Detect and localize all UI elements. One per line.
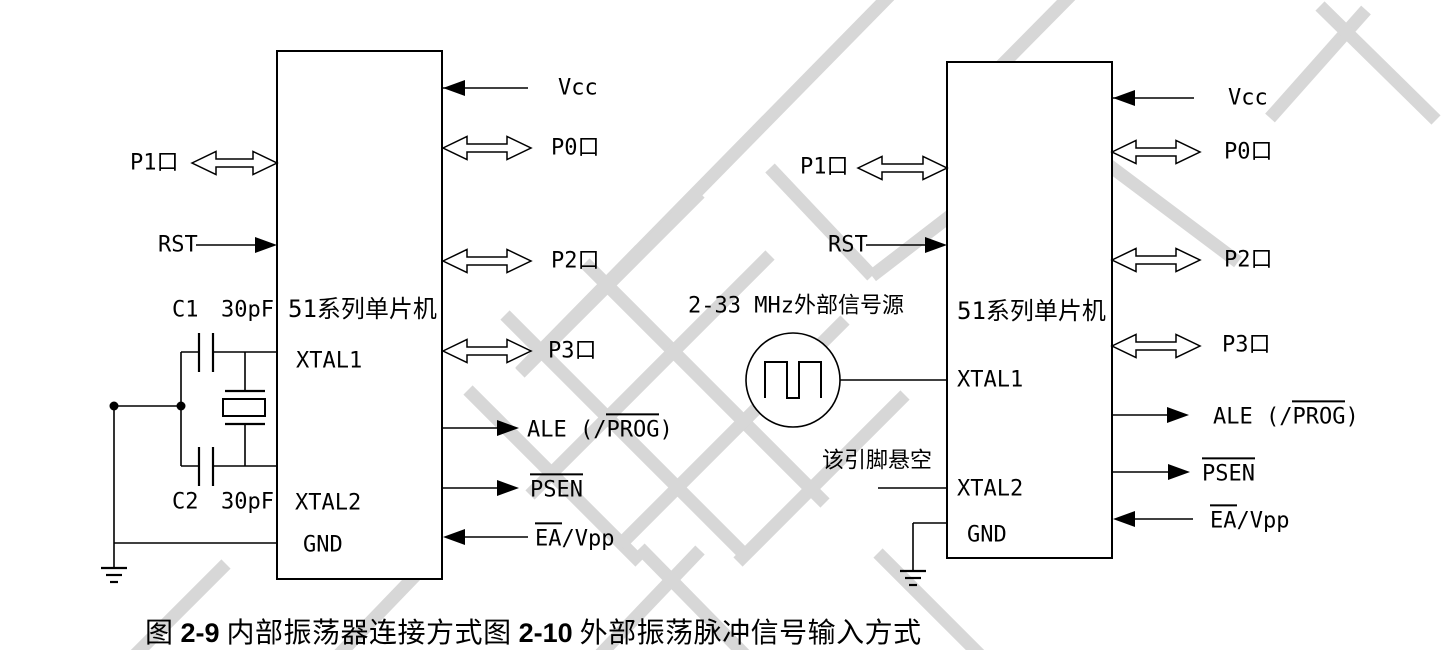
c2-value: 30pF: [221, 489, 274, 514]
left-chip-label: 51系列单片机: [288, 296, 437, 324]
floating-pin-label: 该引脚悬空: [822, 448, 932, 473]
caption-fig2-title: 外部振荡脉冲信号输入方式: [580, 618, 922, 649]
figure-page: P1口 RST C1 30pF C2 30pF 51系列单片机 XTAL1 XT…: [0, 0, 1441, 650]
ea-overlined: EA: [535, 522, 562, 551]
psen-overlined: PSEN: [530, 473, 583, 502]
right-xtal1-pin: XTAL1: [957, 367, 1023, 392]
ale-paren: ): [1345, 404, 1358, 429]
c1-label: C1: [172, 297, 199, 322]
left-gnd-pin: GND: [303, 532, 343, 557]
right-chip-label: 51系列单片机: [957, 298, 1106, 326]
right-rst-label: RST: [828, 232, 868, 257]
psen-overlined: PSEN: [1202, 457, 1255, 486]
left-psen-label: PSEN: [530, 473, 583, 502]
prog-overlined: PROG: [606, 413, 659, 442]
vpp-text: /Vpp: [562, 526, 615, 551]
left-p0-label: P0口: [551, 135, 600, 160]
right-ale-label: ALE (/PROG): [1213, 400, 1359, 429]
caption-fig1-prefix: 图: [145, 618, 174, 649]
caption-fig1-number: 2-9: [181, 618, 220, 648]
ale-paren: ): [659, 417, 672, 442]
junction-dot: [110, 402, 119, 411]
right-p3-label: P3口: [1222, 332, 1271, 357]
c2-label: C2: [172, 489, 199, 514]
prog-overlined: PROG: [1292, 400, 1345, 429]
right-psen-label: PSEN: [1202, 457, 1255, 486]
figure-caption: 图2-9内部振荡器连接方式图2-10外部振荡脉冲信号输入方式: [145, 611, 922, 650]
right-p2-label: P2口: [1224, 247, 1273, 272]
right-p0-label: P0口: [1224, 139, 1273, 164]
right-ea-label: EA/Vpp: [1210, 504, 1289, 533]
right-gnd-pin: GND: [967, 522, 1007, 547]
caption-fig2-number: 2-10: [519, 618, 573, 648]
junction-dot: [177, 402, 186, 411]
signal-source-label: 2-33 MHz外部信号源: [688, 293, 904, 318]
left-p1-label: P1口: [130, 150, 179, 175]
ale-text: ALE (/: [527, 417, 606, 442]
left-xtal1-pin: XTAL1: [296, 348, 362, 373]
circuit-canvas: [0, 0, 1441, 650]
right-vcc-label: Vcc: [1228, 85, 1268, 110]
left-xtal2-pin: XTAL2: [295, 490, 361, 515]
c1-value: 30pF: [221, 297, 274, 322]
caption-fig2-prefix: 图: [483, 618, 512, 649]
capacitor-c2: [199, 447, 213, 486]
ale-text: ALE (/: [1213, 404, 1292, 429]
caption-fig1-title: 内部振荡器连接方式: [227, 618, 484, 649]
left-ground-symbol: [101, 568, 127, 582]
right-xtal2-pin: XTAL2: [957, 476, 1023, 501]
right-p1-label: P1口: [800, 154, 849, 179]
vpp-text: /Vpp: [1237, 508, 1290, 533]
left-ea-label: EA/Vpp: [535, 522, 614, 551]
ea-overlined: EA: [1210, 504, 1237, 533]
signal-source-circle: [746, 333, 840, 427]
left-vcc-label: Vcc: [558, 75, 598, 100]
capacitor-c1: [199, 333, 213, 372]
left-p2-label: P2口: [551, 248, 600, 273]
left-rst-label: RST: [158, 232, 198, 257]
crystal-symbol: [223, 352, 265, 466]
left-p3-label: P3口: [548, 338, 597, 363]
left-ale-label: ALE (/PROG): [527, 413, 673, 442]
